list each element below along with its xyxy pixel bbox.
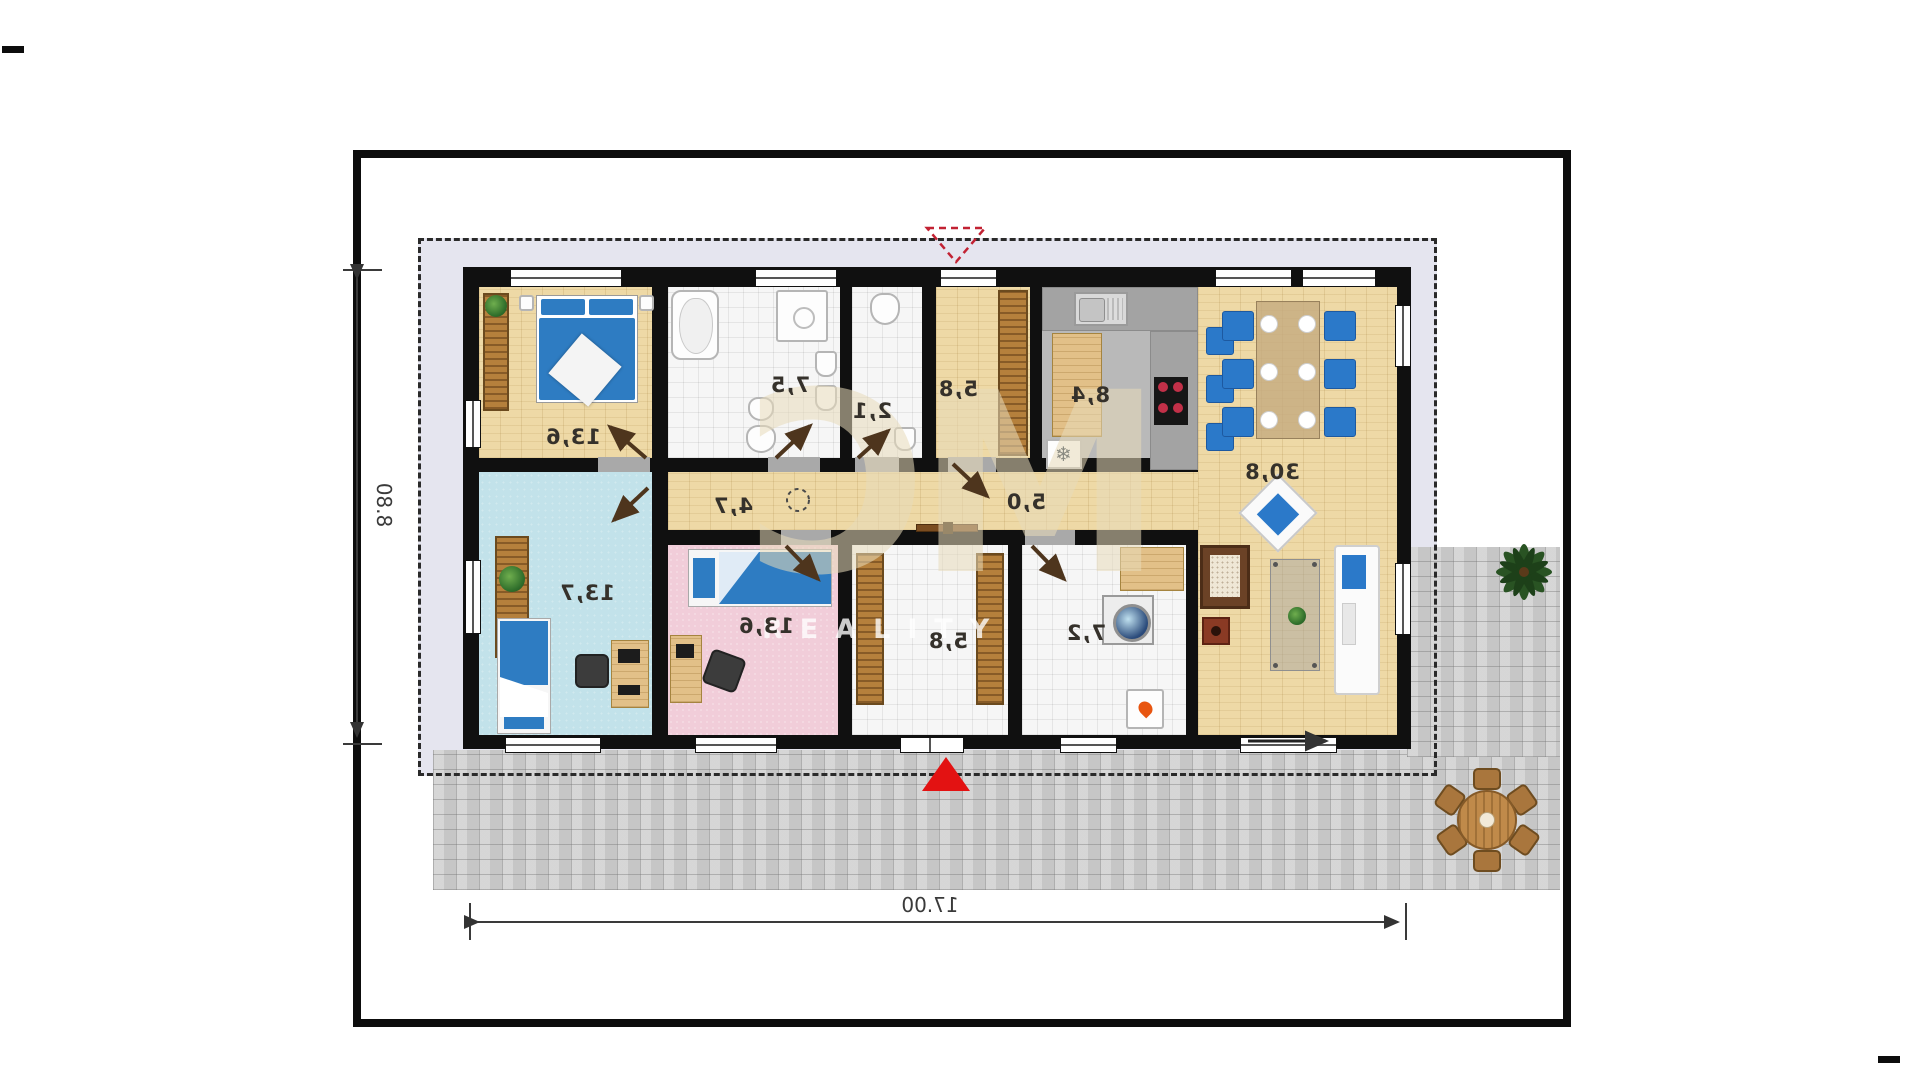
round-table	[1457, 790, 1517, 850]
room-area-label: 13,7	[559, 581, 615, 605]
dimension-height-label: 8.80	[372, 483, 396, 528]
room-area-label: 7,5	[770, 373, 810, 397]
room-area-label: 2,1	[852, 399, 892, 423]
terrace-table-set	[1433, 766, 1543, 876]
floor-plan-image: ❄	[0, 0, 1920, 1080]
room-area-label: 13,6	[738, 614, 794, 638]
room-area-label: 5,0	[1006, 490, 1046, 514]
room-area-label: 5,8	[928, 629, 968, 653]
dimension-width-label: 17.00	[901, 893, 958, 917]
room-area-label: 13,6	[545, 425, 601, 449]
room-area-label: 8,4	[1070, 383, 1110, 407]
room-area-label: 5,8	[938, 377, 978, 401]
room-area-label: 30,8	[1244, 460, 1300, 484]
room-area-label: 4,7	[713, 494, 753, 518]
watermark-text: REALITY	[762, 614, 1062, 645]
room-area-label: 7,2	[1066, 621, 1106, 645]
scan-artifact-mark	[1878, 1056, 1900, 1063]
scan-artifact-mark	[2, 46, 24, 53]
